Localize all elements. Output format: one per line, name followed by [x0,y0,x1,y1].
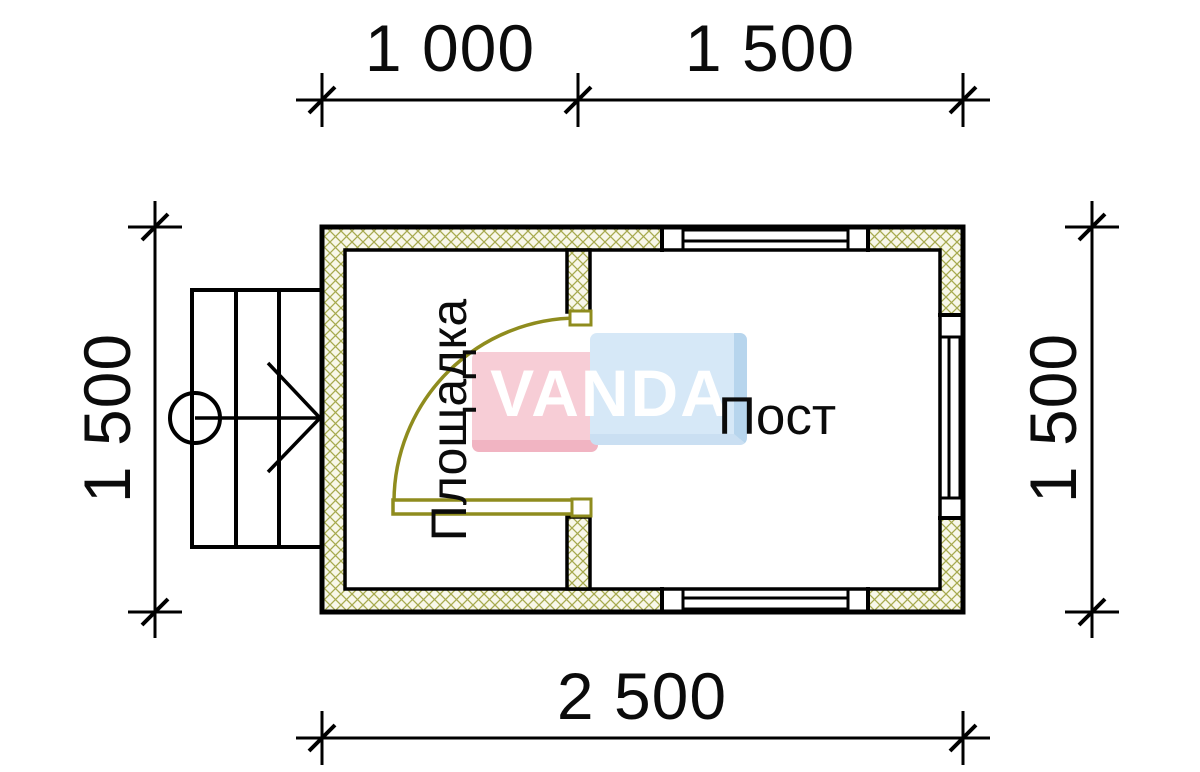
interior-partition-wall [567,250,590,589]
dimension-label-bottom: 2 500 [532,663,752,729]
dimension-label-top-left: 1 000 [340,15,560,81]
room-label-post: Пост [677,390,877,443]
dimension-label-right: 1 500 [1020,308,1086,528]
dimension-label-left: 1 500 [74,308,140,528]
dimension-label-top-right: 1 500 [660,15,880,81]
floor-plan: VANDA [0,0,1200,772]
room-label-ploshchadka: Площадка [424,280,474,560]
